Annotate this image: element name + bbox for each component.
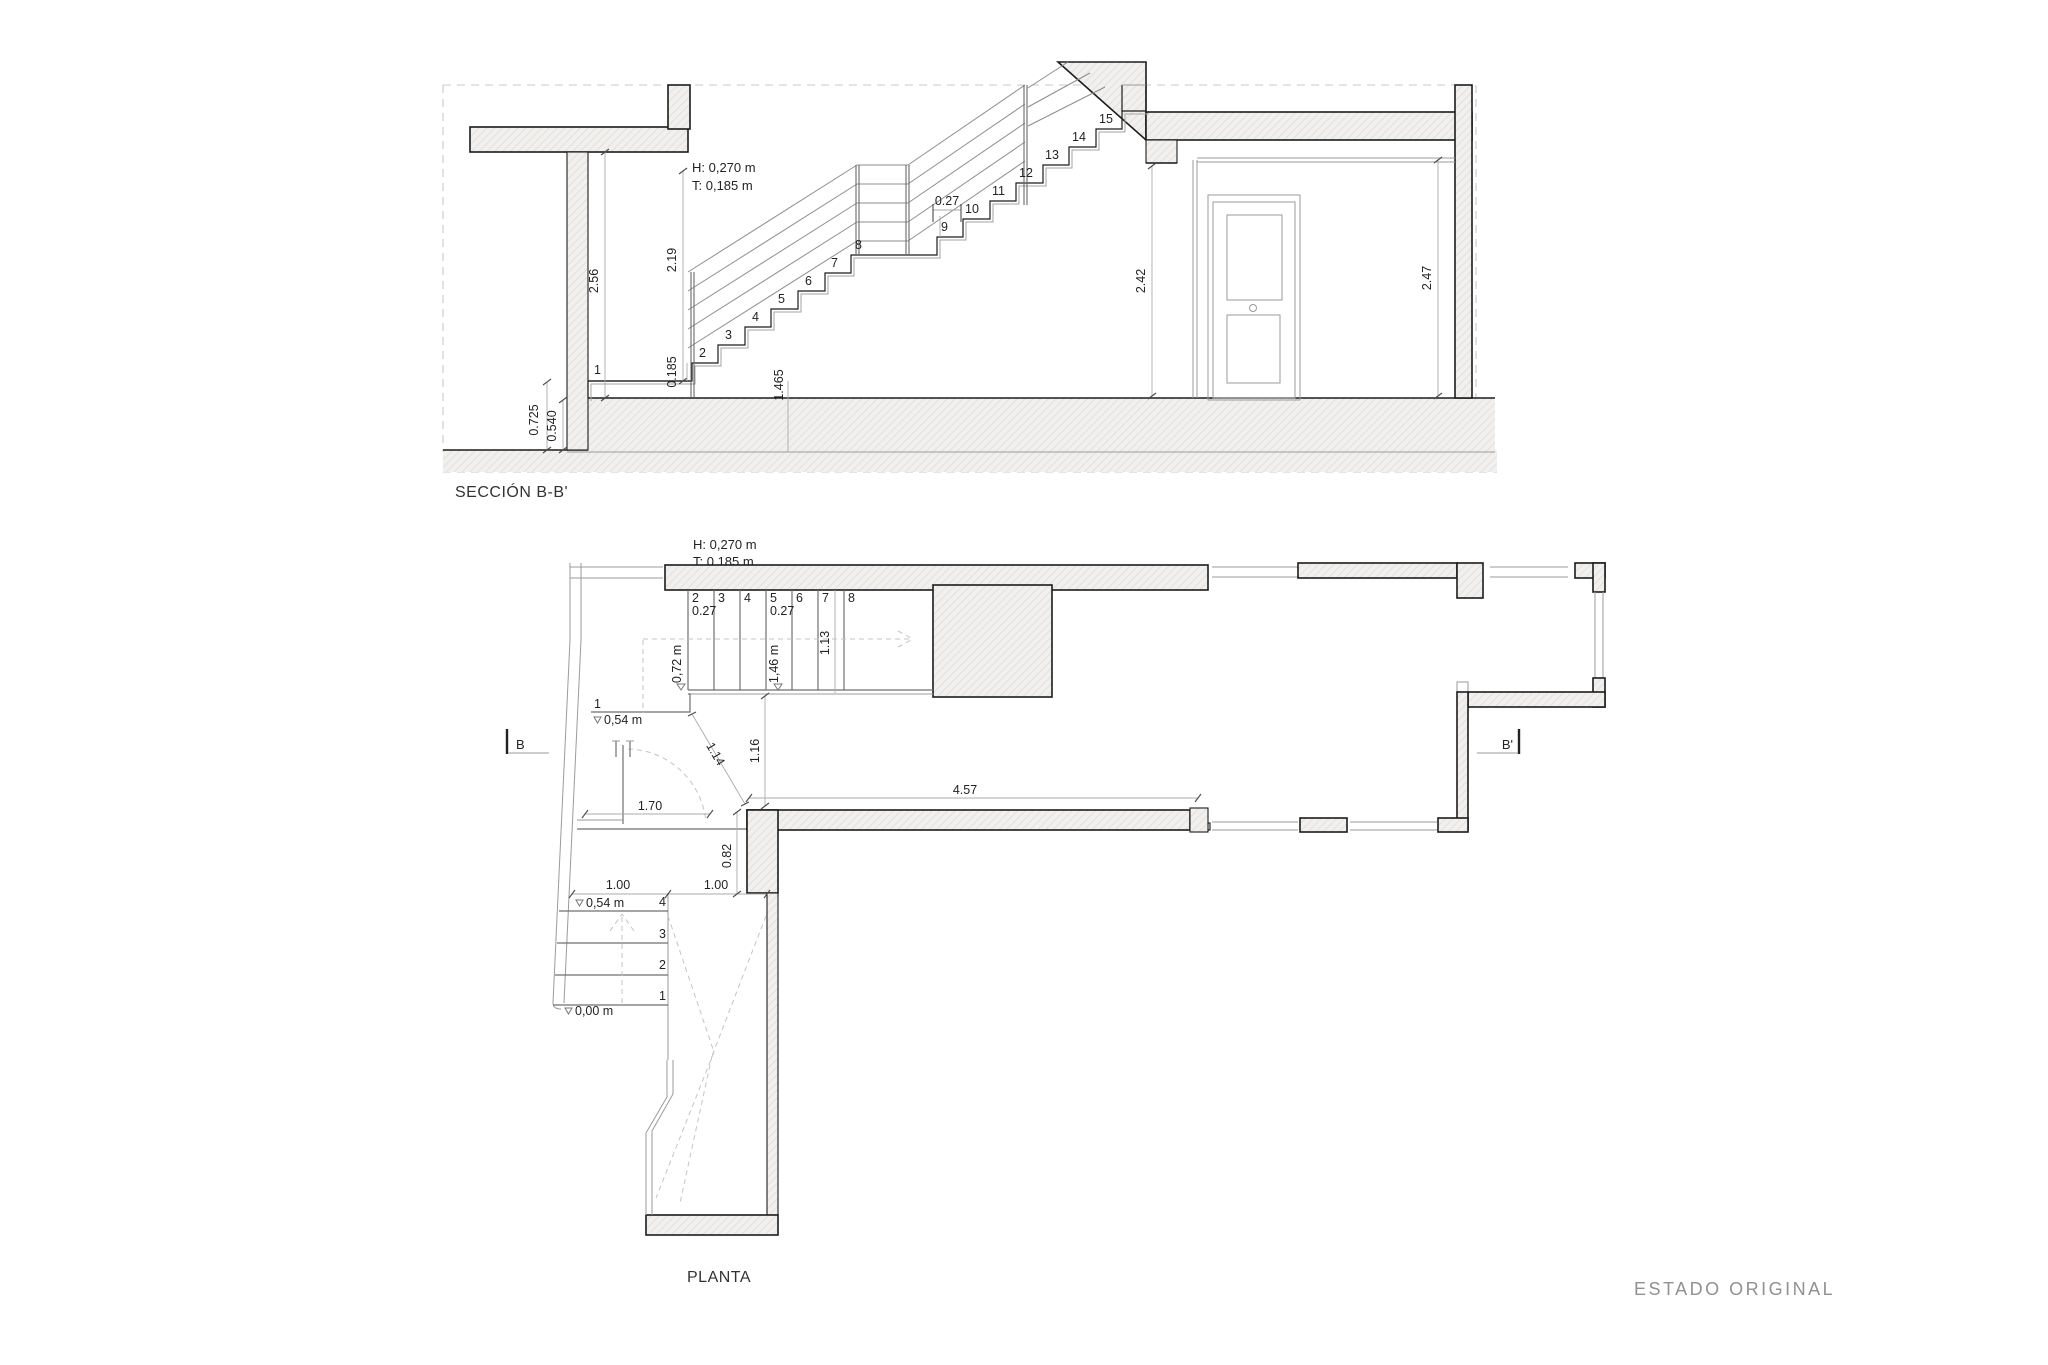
step-number: 10 [965,202,979,216]
plan-upper-stair: 2 3 4 5 6 7 8 0.27 0.27 1.13 0,72 m 1,46… [670,590,933,694]
drawing-sheet: 1 2 3 4 5 6 7 8 9 10 11 12 13 14 15 H: 0… [0,0,2048,1365]
svg-text:0,54 m: 0,54 m [604,713,642,727]
architectural-drawing: 1 2 3 4 5 6 7 8 9 10 11 12 13 14 15 H: 0… [0,0,2048,1365]
dim-headroom: 2.19 [665,248,679,272]
riser-note: H: 0,270 m [693,537,757,552]
dim-landing-width: 1.00 [704,878,728,892]
step-number: 3 [718,591,725,605]
stair-direction-dashed [610,914,766,1203]
level-marker-146: 1,46 m [767,645,782,690]
section-upper-left-wall [470,85,690,152]
level-marker-000: 0,00 m [565,1004,613,1018]
svg-text:0,54 m: 0,54 m [586,896,624,910]
step-number: 14 [1072,130,1086,144]
dim-passage: 0.82 [720,844,734,868]
section-title: SECCIÓN B-B' [455,482,568,501]
sheet-status-label: ESTADO ORIGINAL [1634,1279,1835,1299]
section-view: 1 2 3 4 5 6 7 8 9 10 11 12 13 14 15 H: 0… [443,62,1497,501]
level-marker-054b: 0,54 m [576,896,624,910]
plan-stair-wall-block [933,585,1052,697]
plan-entrance-steps: 4 3 2 1 0,54 m 0,00 m [553,809,770,1203]
dim-room-height: 2.56 [587,269,601,293]
dim-steps-width: 1.00 [606,878,630,892]
section-door [1208,195,1300,400]
step-number: 7 [831,256,838,270]
step-number: 2 [659,958,666,972]
dim-foundation-right: 0.540 [545,410,559,441]
plan-right-wing [1190,563,1605,832]
step-number: 4 [744,591,751,605]
dim-foundation-left: 0.725 [527,404,541,435]
plan-landing: 1 0,54 m [591,694,690,727]
tread-note: T: 0,185 m [692,178,753,193]
step-number: 1 [659,989,666,1003]
dim-hall-width: 1.70 [638,799,662,813]
dim-door-wall: 2.42 [1134,269,1148,293]
section-right-room [1193,158,1455,398]
dim-stair-width: 1.13 [818,631,832,655]
dim-right-wall: 2.47 [1420,266,1434,290]
plan-title: PLANTA [687,1269,751,1286]
step-number: 2 [699,346,706,360]
step-number: 3 [659,927,666,941]
step-number: 11 [992,184,1005,198]
dim-tread: 0.27 [692,604,716,618]
level-marker-072: 0,72 m [670,645,685,690]
marker-label-b-prime: B' [1502,737,1513,752]
step-number: 3 [725,328,732,342]
step-number: 15 [1099,112,1113,126]
marker-label-b: B [516,737,525,752]
dim-tread: 0.27 [770,604,794,618]
dim-tread-width: 0.27 [935,194,959,208]
dim-hall-diagonal: 1.14 [703,740,727,768]
section-marker-b-prime: B' [1477,729,1519,754]
dim-corridor-length: 4.57 [953,783,977,797]
plan-bottom-walls [646,810,1210,1235]
riser-note: H: 0,270 m [692,160,756,175]
step-number: 8 [855,238,862,252]
plan-left-wall [553,563,663,1009]
step-number: 4 [752,310,759,324]
svg-text:0,00 m: 0,00 m [575,1004,613,1018]
dim-hall-depth: 1.16 [748,739,762,763]
dim-flight-run: 1.465 [772,369,786,400]
step-number: 5 [770,591,777,605]
plan-lower-room-walls [646,893,673,1215]
section-ground-slab [443,398,1497,472]
section-stair-note: H: 0,270 m T: 0,185 m [692,160,756,193]
step-number: 5 [778,292,785,306]
first-step-number: 1 [594,697,601,711]
section-marker-b: B [507,729,549,754]
section-upper-slab [1058,62,1472,163]
step-number: 13 [1045,148,1059,162]
section-left-wall [567,152,588,450]
step-number: 2 [692,591,699,605]
step-number: 12 [1019,166,1033,180]
svg-text:1,46 m: 1,46 m [767,645,781,683]
step-number: 8 [848,591,855,605]
door-knob-icon [1250,305,1257,312]
svg-text:0,72 m: 0,72 m [670,645,684,683]
plan-view: H: 0,270 m T: 0,185 m 2 3 4 [507,537,1605,1286]
step-number: 1 [594,363,601,377]
step-number: 6 [805,274,812,288]
level-marker-054: 0,54 m [594,713,642,727]
step-number: 9 [941,220,948,234]
step-number: 7 [822,591,829,605]
step-number: 6 [796,591,803,605]
section-handrail [688,62,1105,397]
section-right-wall [1455,85,1472,398]
dim-first-riser: 0.185 [665,356,679,387]
